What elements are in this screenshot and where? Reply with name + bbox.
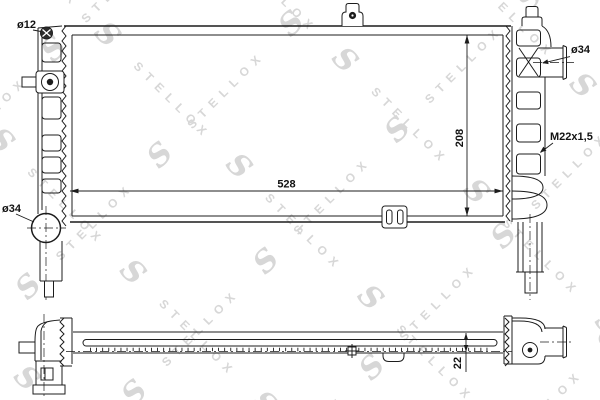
filler-cap — [522, 7, 551, 48]
bottom-body — [66, 332, 512, 362]
bottom-right-end — [504, 316, 573, 366]
left-tank — [22, 26, 66, 302]
radiator-drawing: 528 208 ø12 ø34 ø34 M22x1,5 22 — [0, 0, 600, 400]
label-core-depth: 22 — [452, 357, 464, 369]
label-left-outlet-diameter: ø34 — [2, 203, 22, 215]
right-tank — [506, 7, 574, 301]
bleed-valve-od12 — [41, 27, 53, 39]
left-serrated-edge — [62, 26, 66, 226]
bottom-pipe — [516, 214, 544, 300]
radiator-core — [64, 26, 511, 222]
right-serrated-edge — [506, 26, 510, 221]
label-core-height: 208 — [454, 129, 466, 147]
radiator-technical-drawing-page: SSTELLOXSSTELLOXSSTELLOXSSTELLOXSSTELLOX… — [0, 0, 600, 400]
bottom-view-lower-bracket — [383, 353, 404, 362]
bottom-view — [19, 314, 573, 399]
front-view — [22, 4, 574, 303]
label-drain-thread: M22x1,5 — [550, 131, 593, 143]
label-right-inlet-diameter: ø34 — [571, 44, 591, 56]
left-outlet-pipe-od34 — [27, 206, 66, 302]
top-mounting-bracket — [342, 4, 363, 27]
label-core-width: 528 — [277, 179, 295, 191]
overflow-fitting — [22, 71, 64, 93]
bottom-mounting-bracket — [382, 206, 407, 228]
bottom-left-elbow — [19, 314, 72, 399]
label-bleed-diameter: ø12 — [17, 19, 36, 31]
